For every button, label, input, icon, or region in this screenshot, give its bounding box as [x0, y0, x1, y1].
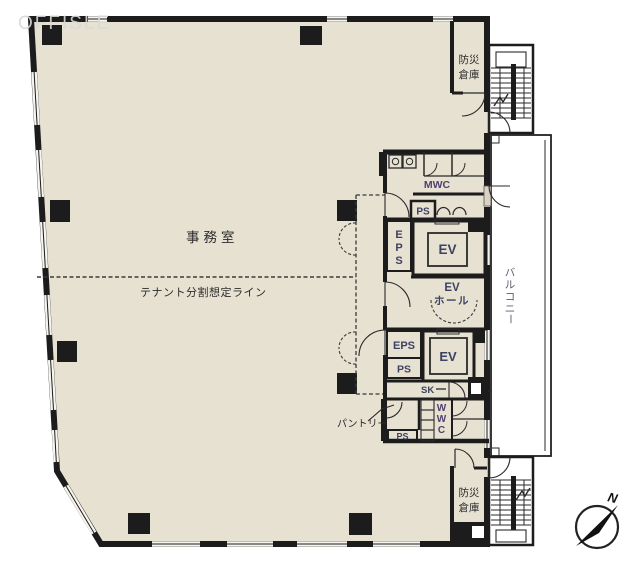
svg-text:倉庫: 倉庫: [459, 68, 480, 81]
elevator-1-label: EV: [438, 242, 456, 257]
ps2-label: PS: [397, 364, 411, 376]
svg-text:コ: コ: [505, 291, 516, 303]
compass: N: [576, 489, 620, 548]
eps-shaft-label: E P S: [395, 229, 402, 267]
elevator-2-label: EV: [439, 349, 457, 364]
svg-text:P: P: [395, 242, 402, 254]
staircase-bottom: [489, 457, 533, 545]
mwc-label: MWC: [424, 179, 451, 191]
stair-door-arc: [489, 112, 510, 133]
svg-text:EV: EV: [444, 282, 460, 294]
compass-north-label: N: [606, 489, 619, 506]
balcony-door-sill: [484, 186, 491, 206]
staircase-top: [489, 45, 533, 133]
office-label: 事務室: [186, 229, 239, 245]
watermark-text: OFFISLE: [18, 13, 111, 34]
svg-text:防災: 防災: [459, 486, 480, 499]
svg-text:W: W: [437, 403, 447, 414]
floor-plan-canvas: 事務室 テナント分割想定ライン: [0, 0, 640, 587]
ps-upper-label: PS: [416, 207, 430, 218]
svg-text:S: S: [395, 255, 402, 267]
balcony-label: バ ル コ ニ ー: [504, 267, 516, 324]
svg-text:ホール: ホール: [434, 295, 470, 307]
sk-label: SK: [421, 385, 434, 396]
svg-text:E: E: [395, 229, 402, 241]
stair-door-arc: [489, 457, 510, 478]
svg-text:倉庫: 倉庫: [459, 501, 480, 514]
tenant-split-label: テナント分割想定ライン: [140, 285, 267, 299]
svg-text:W: W: [437, 414, 447, 425]
stair-direction-arrow: [494, 94, 508, 106]
svg-text:バ: バ: [505, 267, 516, 279]
floor-plan-page: 事務室 テナント分割想定ライン: [0, 0, 640, 587]
pantry-label: パントリー: [337, 418, 388, 430]
building-outline: [31, 19, 487, 544]
svg-text:C: C: [438, 425, 445, 436]
pantry-ps-label: PS: [396, 432, 408, 442]
eps2-label: EPS: [393, 340, 415, 352]
svg-text:ー: ー: [504, 314, 516, 325]
svg-text:防災: 防災: [459, 53, 480, 66]
svg-text:ル: ル: [505, 279, 516, 291]
stair-rail: [511, 476, 516, 530]
stair-rail: [511, 64, 516, 120]
balcony: バ ル コ ニ ー: [484, 135, 551, 456]
